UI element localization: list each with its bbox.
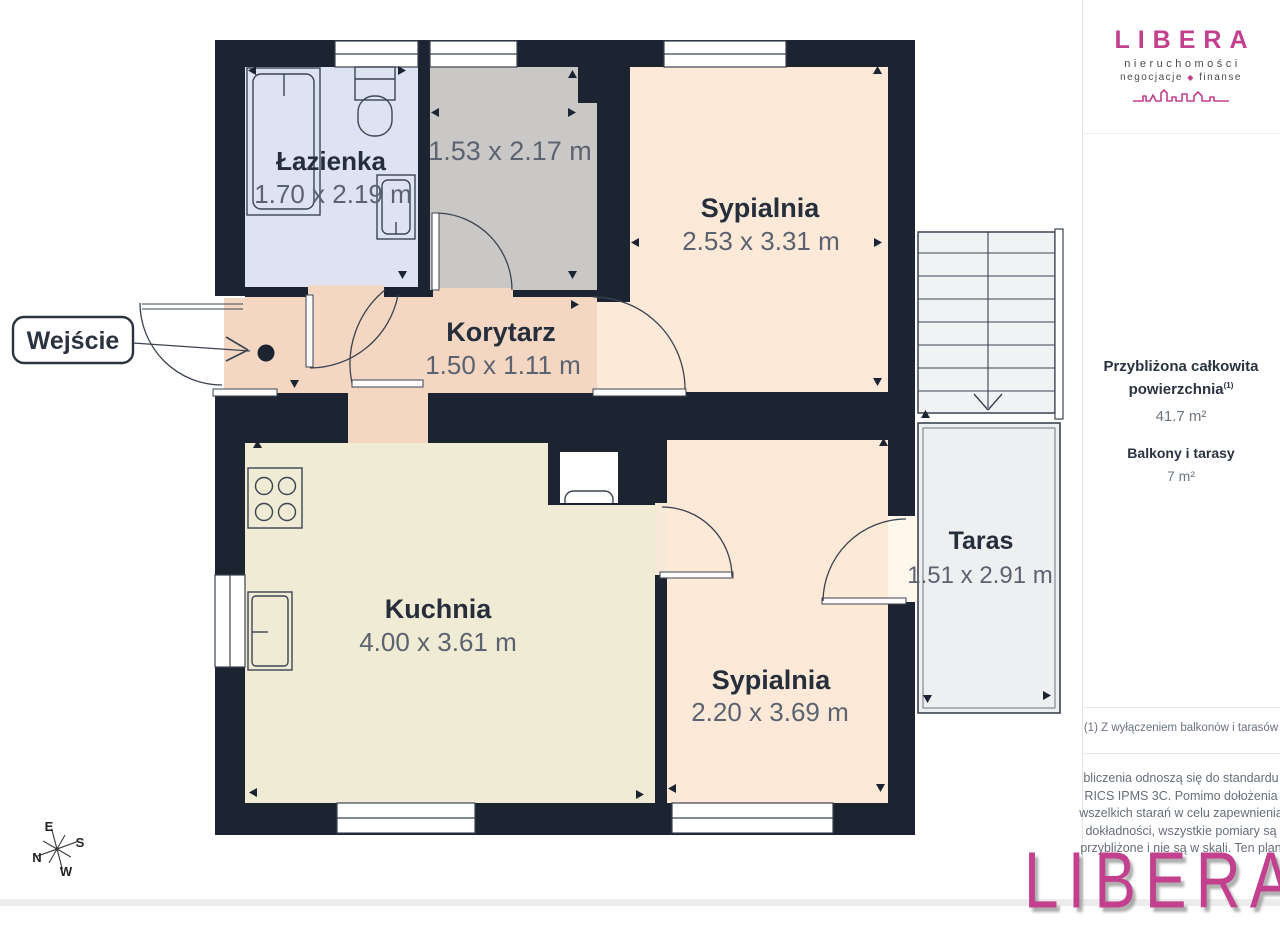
compass-w: W	[60, 864, 73, 879]
doorway-lazienka	[308, 285, 384, 299]
room-fill-sypialnia-bottom	[667, 440, 888, 803]
footnote: (1) Z wyłączeniem balkonów i tarasów	[1082, 722, 1280, 734]
footnote-divider-top	[1082, 707, 1280, 708]
doorway-taras	[888, 516, 918, 602]
label-taras: Taras	[949, 527, 1014, 555]
dims-taras: 1.51 x 2.91 m	[907, 562, 1052, 589]
footnote-divider-bottom	[1082, 753, 1280, 754]
room-fill-utility	[430, 67, 597, 290]
doorway-kuchnia	[348, 393, 428, 445]
compass-n: N	[32, 850, 41, 865]
doorway-utility	[433, 288, 513, 300]
brand-tagline1: nieruchomości	[1082, 58, 1280, 70]
window-bottom-kitchen	[337, 803, 475, 833]
kitchen-niche	[560, 452, 618, 503]
dims-kuchnia: 4.00 x 3.61 m	[359, 627, 517, 657]
disclaimer-line: wszelkich starań w celu zapewnienia	[1072, 805, 1280, 823]
brand-name: LIBERA	[1082, 26, 1280, 55]
label-kuchnia: Kuchnia	[385, 594, 492, 624]
area-summary: Przybliżona całkowita powierzchnia(1) 41…	[1082, 357, 1280, 484]
entrance-floor	[224, 298, 245, 392]
brand-tagline2: negocjacje ◆ finanse	[1082, 72, 1280, 83]
window-top-1	[335, 41, 418, 67]
window-top-2	[430, 41, 517, 67]
entrance-point	[258, 345, 275, 362]
area-title-line2: powierzchnia(1)	[1082, 376, 1280, 399]
area-superscript: (1)	[1224, 381, 1234, 390]
tagline-right: finanse	[1199, 72, 1242, 83]
dims-sypialnia-top: 2.53 x 3.31 m	[682, 226, 840, 256]
disclaimer-line: RICS IPMS 3C. Pomimo dołożenia	[1072, 788, 1280, 806]
doorway-sypialnia-bottom	[655, 503, 667, 575]
window-top-3	[664, 41, 786, 67]
balcony-label: Balkony i tarasy	[1082, 445, 1280, 461]
compass-icon: E S N W	[32, 819, 84, 879]
utility-wall-notch	[578, 67, 597, 103]
area-total-value: 41.7 m²	[1082, 408, 1280, 425]
label-sypialnia-top: Sypialnia	[701, 193, 821, 223]
disclaimer-line: bliczenia odnoszą się do standardu	[1072, 770, 1280, 788]
tagline-left: negocjacje	[1120, 72, 1183, 83]
brand-watermark: LIBERA	[1024, 834, 1280, 926]
sidebar: LIBERA nieruchomości negocjacje ◆ finans…	[1082, 0, 1280, 906]
skyline-icon	[1131, 87, 1231, 104]
label-lazienka: Łazienka	[276, 146, 386, 176]
stair-rail	[1055, 229, 1063, 419]
label-korytarz: Korytarz	[446, 317, 556, 347]
area-title: Przybliżona całkowita powierzchnia(1)	[1082, 357, 1280, 399]
window-left-kitchen	[215, 575, 245, 667]
brand-logo: LIBERA nieruchomości negocjacje ◆ finans…	[1082, 26, 1280, 109]
label-sypialnia-bottom: Sypialnia	[712, 665, 832, 695]
stairs	[918, 229, 1063, 419]
diamond-icon: ◆	[1187, 73, 1195, 82]
dims-sypialnia-bottom: 2.20 x 3.69 m	[691, 697, 849, 727]
dims-utility: 1.53 x 2.17 m	[428, 136, 592, 166]
window-bottom-bedroom	[672, 803, 833, 833]
balcony-value: 7 m²	[1082, 468, 1280, 484]
dims-korytarz: 1.50 x 1.11 m	[425, 350, 581, 380]
entrance-label: Wejście	[27, 327, 120, 355]
dims-lazienka: 1.70 x 2.19 m	[254, 179, 412, 209]
logo-divider	[1082, 133, 1280, 134]
area-title-line1: Przybliżona całkowita	[1082, 357, 1280, 376]
room-fill-sypialnia-top-ext	[597, 302, 630, 392]
compass-e: E	[45, 819, 54, 834]
compass-s: S	[76, 835, 85, 850]
